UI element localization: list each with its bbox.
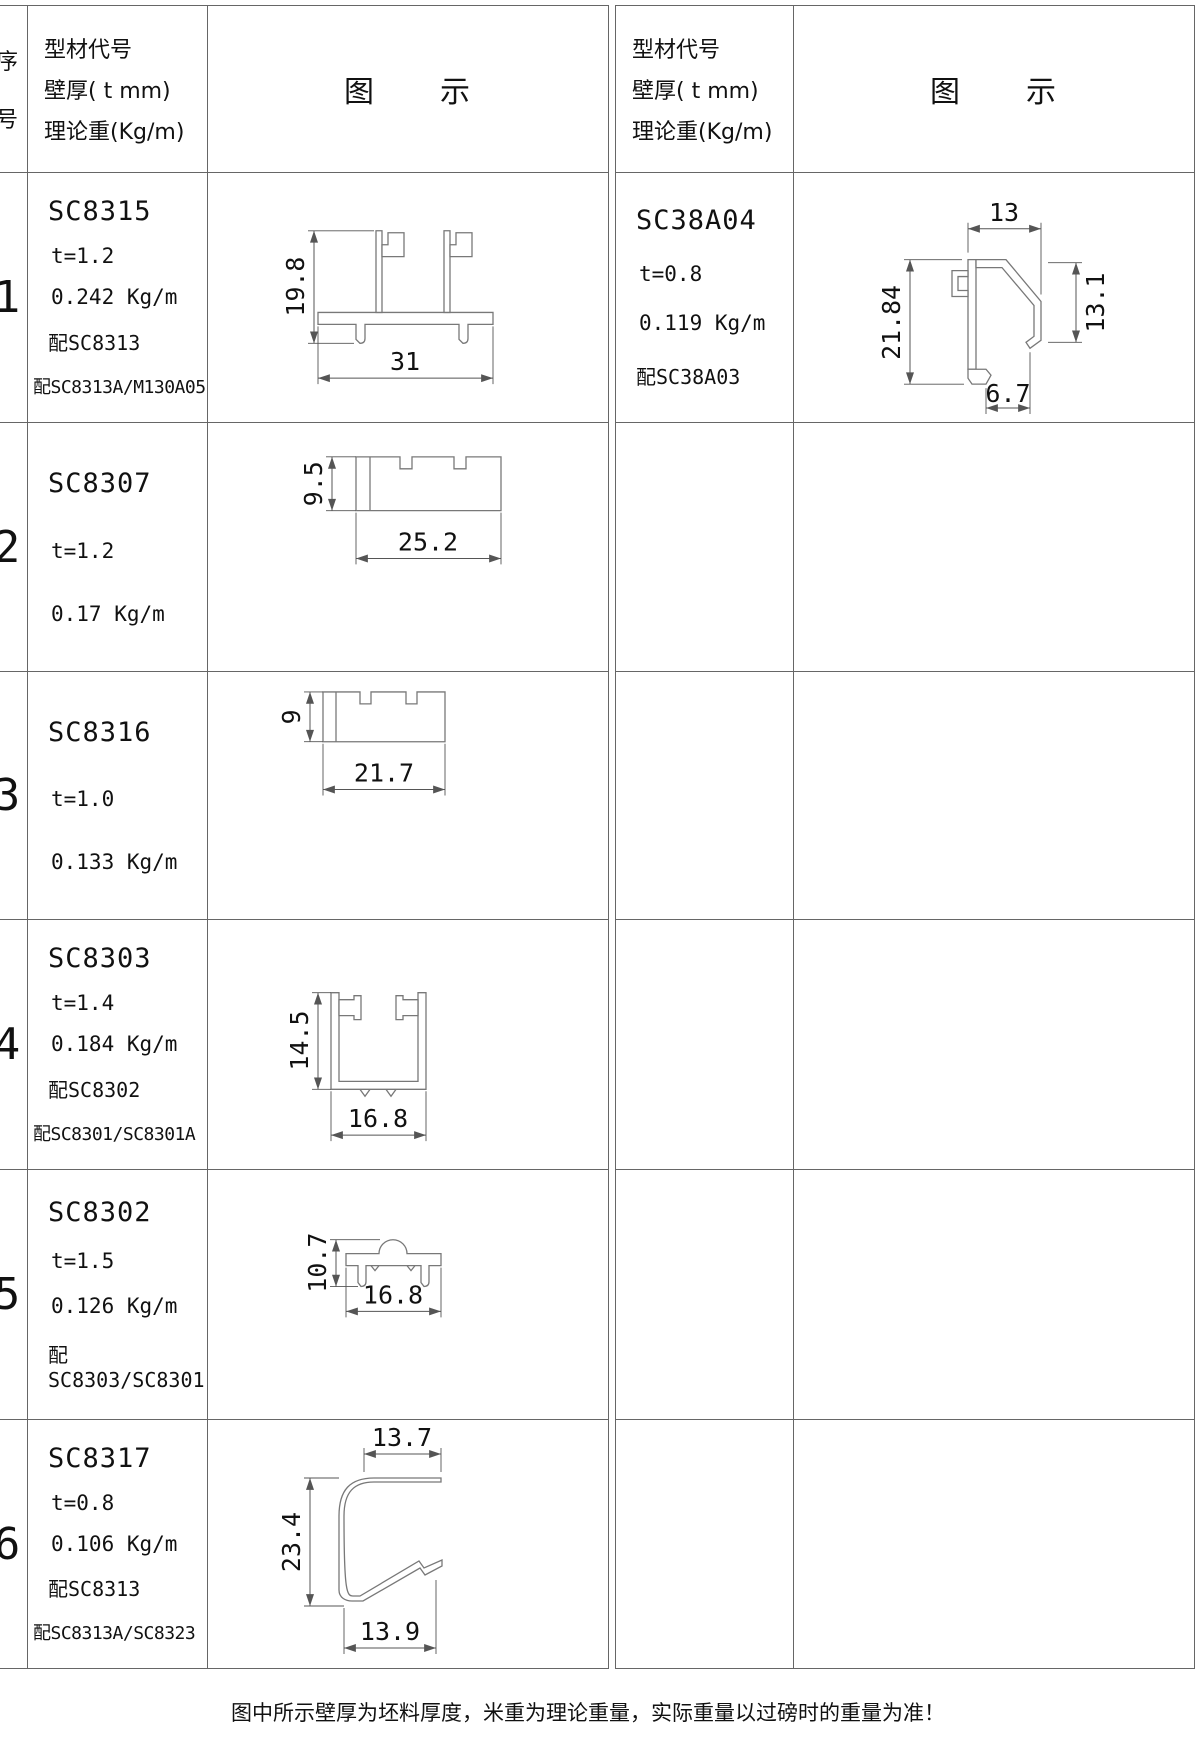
spec-header-line3: 理论重(Kg/m) (44, 114, 207, 146)
theoretical-weight: 0.242 Kg/m (28, 285, 207, 309)
profile-diagram-sc8315: 19.8 31 (208, 173, 608, 422)
empty-diagram-cell (794, 672, 1194, 920)
row-number: 5 (0, 1269, 20, 1320)
wall-thickness: t=1.2 (28, 244, 207, 268)
profile-diagram-sc8317: 13.7 23.4 13.9 (208, 1420, 608, 1668)
empty-diagram-cell (794, 1420, 1194, 1668)
profile-code: SC8303 (28, 943, 207, 974)
profile-code: SC8317 (28, 1443, 207, 1474)
spec-header-line1: 型材代号 (44, 32, 207, 64)
matching-profile: 配SC8313A/SC8323 (28, 1619, 207, 1645)
header-diagram-column: 图 示 (794, 6, 1194, 173)
diagram-cell-sc38a04: 13 21.84 13.1 6.7 (794, 173, 1194, 423)
spec-header-line2: 壁厚( t mm) (632, 73, 793, 105)
serial-header-char-top: 序 (0, 44, 18, 76)
empty-spec-cell (616, 672, 794, 920)
dim-label-width: 25.2 (398, 528, 458, 557)
serial-number: 2 (0, 423, 28, 672)
dim-label-width: 16.8 (363, 1281, 423, 1310)
dim-label-width: 16.8 (348, 1104, 408, 1133)
empty-diagram-cell (794, 920, 1194, 1170)
serial-number: 3 (0, 672, 28, 920)
spec-cell-sc8315: SC8315 t=1.2 0.242 Kg/m 配SC8313 配SC8313A… (28, 173, 208, 423)
empty-spec-cell (616, 1170, 794, 1420)
header-spec-column: 型材代号 壁厚( t mm) 理论重(Kg/m) (28, 6, 208, 173)
matching-profile: 配SC8301/SC8301A (28, 1120, 207, 1146)
spec-cell-sc8307: SC8307 t=1.2 0.17 Kg/m (28, 423, 208, 672)
serial-header-char-bottom: 号 (0, 102, 18, 134)
header-serial-column: 序 号 (0, 6, 28, 173)
dim-label-bottom-width: 13.9 (360, 1617, 420, 1646)
theoretical-weight: 0.106 Kg/m (28, 1532, 207, 1556)
empty-spec-cell (616, 920, 794, 1170)
spec-cell-sc38a04: SC38A04 t=0.8 0.119 Kg/m 配SC38A03 (616, 173, 794, 423)
diagram-cell-sc8315: 19.8 31 (208, 173, 608, 423)
matching-profile: 配SC8302 (28, 1074, 207, 1103)
right-profile-table: 型材代号 壁厚( t mm) 理论重(Kg/m) 图 示 SC38A04 t=0… (615, 5, 1195, 1669)
dim-label-right-height: 13.1 (1081, 273, 1110, 333)
dim-label-height: 10.7 (303, 1233, 332, 1293)
spec-header-line2: 壁厚( t mm) (44, 73, 207, 105)
wall-thickness: t=1.5 (28, 1249, 207, 1273)
matching-profile: 配SC8303/SC8301 (28, 1339, 207, 1392)
profile-diagram-sc8303: 14.5 16.8 (208, 920, 608, 1169)
profile-diagram-sc8307: 9.5 25.2 (208, 423, 608, 671)
spec-header-line3: 理论重(Kg/m) (632, 114, 793, 146)
dim-label-top-width: 13 (989, 198, 1019, 227)
dim-label-height: 14.5 (285, 1011, 314, 1071)
profile-code: SC8315 (28, 196, 207, 227)
diagram-cell-sc8302: 10.7 16.8 (208, 1170, 608, 1420)
footer-note: 图中所示壁厚为坯料厚度，米重为理论重量，实际重量以过磅时的重量为准！ (0, 1697, 1176, 1727)
theoretical-weight: 0.17 Kg/m (28, 602, 207, 626)
serial-number: 5 (0, 1170, 28, 1420)
row-number: 2 (0, 522, 20, 573)
spec-cell-sc8317: SC8317 t=0.8 0.106 Kg/m 配SC8313 配SC8313A… (28, 1420, 208, 1668)
wall-thickness: t=0.8 (616, 262, 793, 286)
row-number: 3 (0, 770, 20, 821)
profile-code: SC38A04 (616, 205, 793, 236)
spec-cell-sc8302: SC8302 t=1.5 0.126 Kg/m 配SC8303/SC8301 (28, 1170, 208, 1420)
empty-spec-cell (616, 423, 794, 672)
header-spec-column: 型材代号 壁厚( t mm) 理论重(Kg/m) (616, 6, 794, 173)
theoretical-weight: 0.184 Kg/m (28, 1032, 207, 1056)
spec-cell-sc8303: SC8303 t=1.4 0.184 Kg/m 配SC8302 配SC8301/… (28, 920, 208, 1170)
profile-diagram-sc8302: 10.7 16.8 (208, 1170, 608, 1419)
dim-label-height: 9 (277, 709, 306, 724)
matching-profile: 配SC8313 (28, 327, 207, 356)
wall-thickness: t=1.4 (28, 991, 207, 1015)
theoretical-weight: 0.119 Kg/m (616, 311, 793, 335)
serial-number: 6 (0, 1420, 28, 1668)
wall-thickness: t=1.2 (28, 539, 207, 563)
wall-thickness: t=1.0 (28, 787, 207, 811)
serial-number: 4 (0, 920, 28, 1170)
profile-diagram-sc8316: 9 21.7 (208, 672, 608, 919)
spec-header-line1: 型材代号 (632, 32, 793, 64)
wall-thickness: t=0.8 (28, 1491, 207, 1515)
dim-label-height: 19.8 (281, 257, 310, 317)
diagram-cell-sc8317: 13.7 23.4 13.9 (208, 1420, 608, 1668)
dim-label-width: 21.7 (354, 759, 414, 788)
profile-diagram-sc38a04: 13 21.84 13.1 6.7 (794, 173, 1194, 422)
empty-spec-cell (616, 1420, 794, 1668)
empty-diagram-cell (794, 1170, 1194, 1420)
row-number: 6 (0, 1519, 20, 1570)
left-profile-table: 序 号 型材代号 壁厚( t mm) 理论重(Kg/m) 图 示 1 SC831… (0, 5, 609, 1669)
dim-label-height: 9.5 (299, 461, 328, 506)
diagram-cell-sc8316: 9 21.7 (208, 672, 608, 920)
diagram-cell-sc8303: 14.5 16.8 (208, 920, 608, 1170)
row-number: 4 (0, 1019, 20, 1070)
dim-label-height: 21.84 (877, 285, 906, 360)
serial-number: 1 (0, 173, 28, 423)
dim-label-width: 31 (390, 347, 420, 376)
diagram-cell-sc8307: 9.5 25.2 (208, 423, 608, 672)
matching-profile: 配SC38A03 (616, 361, 793, 390)
theoretical-weight: 0.133 Kg/m (28, 850, 207, 874)
empty-diagram-cell (794, 423, 1194, 672)
matching-profile: 配SC8313 (28, 1573, 207, 1602)
diagram-header-label: 图 示 (344, 67, 472, 111)
dim-label-top-width: 13.7 (372, 1423, 432, 1452)
diagram-header-label: 图 示 (930, 67, 1058, 111)
matching-profile: 配SC8313A/M130A05 (28, 373, 207, 399)
row-number: 1 (0, 272, 20, 323)
spec-cell-sc8316: SC8316 t=1.0 0.133 Kg/m (28, 672, 208, 920)
profile-code: SC8307 (28, 468, 207, 499)
dim-label-bottom-width: 6.7 (985, 379, 1030, 408)
dim-label-height: 23.4 (277, 1512, 306, 1572)
profile-code: SC8302 (28, 1197, 207, 1228)
profile-code: SC8316 (28, 717, 207, 748)
header-diagram-column: 图 示 (208, 6, 608, 173)
theoretical-weight: 0.126 Kg/m (28, 1294, 207, 1318)
